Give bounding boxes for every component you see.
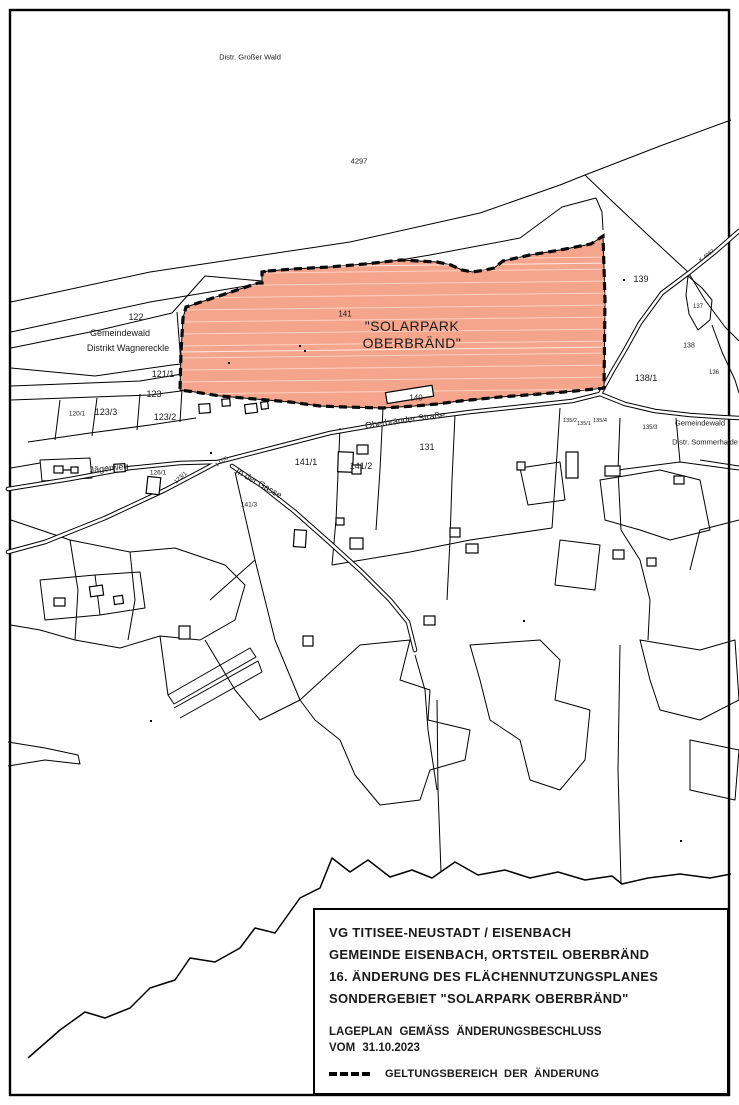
legend-row: GELTUNGSBEREICH DER ÄNDERUNG (329, 1068, 717, 1080)
label-gemeindewald-right: Gemeindewald (675, 419, 725, 428)
label-distr-grosser-wald: Distr. Großer Wald (219, 53, 281, 62)
title-subtitle-2: VOM 31.10.2023 (329, 1040, 717, 1056)
title-line-1: VG TITISEE-NEUSTADT / EISENBACH (329, 922, 717, 944)
label-parcel-137: 137 (693, 304, 703, 310)
label-solarpark-line2: OBERBRÄND" (363, 335, 462, 351)
title-line-2: GEMEINDE EISENBACH, ORTSTEIL OBERBRÄND (329, 944, 717, 966)
lageplan-map: Distr. Großer Wald 4297 122 Gemeindewald… (0, 0, 739, 1105)
title-subtitle-1: LAGEPLAN GEMÄSS ÄNDERUNGSBESCHLUSS (329, 1024, 717, 1040)
label-parcel-141: 141 (338, 310, 351, 319)
legend-label: GELTUNGSBEREICH DER ÄNDERUNG (385, 1068, 599, 1080)
label-parcel-140: 140 (409, 394, 422, 403)
label-parcel-138-1: 138/1 (635, 373, 658, 383)
label-parcel-141-3: 141/3 (241, 502, 257, 509)
dashed-boundary-icon (329, 1072, 373, 1076)
label-parcel-135-3: 135/3 (642, 425, 657, 431)
label-parcel-141-1: 141/1 (295, 457, 318, 467)
label-parcel-123-3: 123/3 (95, 407, 118, 417)
label-parcel-122: 122 (128, 312, 143, 322)
label-parcel-135-4: 135/4 (593, 418, 607, 424)
title-block: VG TITISEE-NEUSTADT / EISENBACH GEMEINDE… (313, 908, 729, 1095)
label-solarpark-line1: "SOLARPARK (365, 318, 460, 334)
label-parcel-135-1: 135/1 (577, 421, 591, 427)
label-parcel-139: 139 (633, 274, 648, 284)
label-parcel-141-2: 141/2 (350, 461, 373, 471)
label-parcel-126-1: 126/1 (150, 470, 166, 477)
label-parcel-135-2: 135/2 (563, 418, 577, 424)
label-distr-sommerhalde: Distr. Sommerhalde (672, 438, 738, 447)
label-gemeindewald-left: Gemeindewald (90, 328, 150, 338)
label-parcel-123: 123 (146, 389, 161, 399)
label-distrikt-wagnereckle: Distrikt Wagnereckle (87, 343, 169, 353)
label-parcel-136: 136 (709, 370, 719, 376)
label-parcel-4297: 4297 (351, 157, 368, 166)
label-parcel-123-2: 123/2 (154, 412, 177, 422)
title-line-4: SONDERGEBIET "SOLARPARK OBERBRÄND" (329, 988, 717, 1010)
label-parcel-131: 131 (419, 442, 434, 452)
label-parcel-121-1: 121/1 (152, 369, 175, 379)
title-line-3: 16. ÄNDERUNG DES FLÄCHENNUTZUNGSPLANES (329, 966, 717, 988)
label-parcel-138: 138 (683, 343, 695, 350)
label-parcel-120-1: 120/1 (69, 411, 85, 418)
